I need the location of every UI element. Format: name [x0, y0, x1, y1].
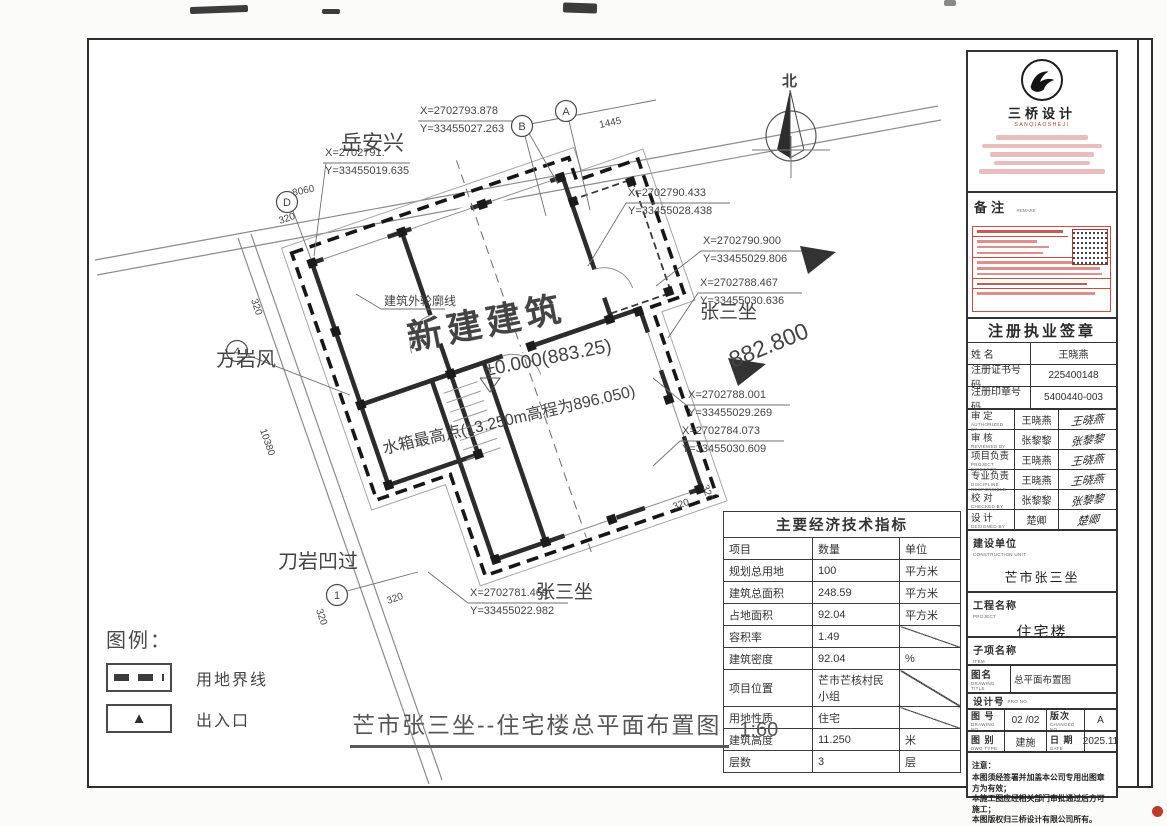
- seal-label: 注册印章号码: [968, 387, 1030, 408]
- drawing-no-row: 图 号DRAWING NO. 02 /02 版次CHANGED NO. A: [966, 708, 1118, 732]
- cell: 11.250: [813, 729, 900, 751]
- project-label: 工程名称: [973, 601, 1017, 612]
- faint-company-info-line: [994, 161, 1090, 166]
- dim-8060: 8060: [291, 183, 315, 198]
- table-title: 主要经济技术指标: [724, 512, 961, 538]
- table-row: 项目位置芒市芒核村民小组: [724, 670, 961, 707]
- drawing-type-label: 图 别: [971, 733, 1001, 746]
- title-block: 三桥设计 SANQIAOSHEJI 备注 REMARK 注册执业签章: [966, 50, 1118, 798]
- note-line: 本图版权归三桥设计有限公司所有。: [972, 815, 1112, 826]
- coord-label: Y=33455030.609: [682, 443, 766, 455]
- dim-10380: 10380: [257, 427, 277, 457]
- col-header: 数量: [813, 538, 900, 560]
- note-line: 本施工图应经相关部门审批通过后方可施工；: [972, 794, 1112, 815]
- owner-name-right: 张三坐: [700, 301, 757, 323]
- qualification-stamp: [972, 226, 1111, 312]
- signoff-name: 楚卿: [1014, 510, 1058, 529]
- neighbor-name-top: 岳安兴: [341, 132, 404, 155]
- remark-box: 备注 REMARK: [966, 191, 1118, 319]
- scan-artifact: [563, 2, 597, 13]
- dim-320: 320: [385, 591, 405, 607]
- signoff-label: 专业负责: [971, 468, 1011, 482]
- scan-artifact: [944, 0, 956, 6]
- seal-value: 225400148: [1030, 365, 1116, 386]
- col-header: 单位: [900, 538, 961, 560]
- design-no-label-en: PRO NO.: [1008, 699, 1029, 704]
- signoff-label-en: CHECKED BY: [971, 504, 1011, 509]
- qr-code: [1073, 230, 1107, 264]
- cell-diagonal: [900, 670, 961, 707]
- drawing-type-row: 图 别DWG TYPE 建施 日 期DATE 2025.11: [966, 730, 1118, 753]
- signoff-row: 审 核REVIEWED BY 张黎黎 张黎黎: [968, 429, 1116, 449]
- cell-diagonal: [900, 707, 961, 729]
- entrance-marker: [800, 246, 836, 274]
- scan-artifact: [190, 5, 248, 14]
- coord-label: X=2702784.073: [682, 425, 760, 437]
- coord-label: X=2702790.900: [703, 235, 781, 247]
- water-tank-label: 水箱最高点(13.250m高程为896.050): [381, 382, 637, 458]
- company-name-latin: SANQIAOSHEJI: [968, 122, 1116, 128]
- signoff-name: 张黎黎: [1014, 490, 1058, 509]
- owner-value: 芒市张三坐: [973, 567, 1111, 586]
- signoff-name: 王晓燕: [1014, 410, 1058, 429]
- scan-artifact: [322, 9, 340, 14]
- legend-title: 图例：: [106, 624, 268, 653]
- cell: 芒市芒核村民小组: [813, 670, 900, 707]
- seal-title: 注册执业签章: [968, 319, 1116, 342]
- triangle-icon: ▲: [132, 711, 147, 726]
- cell: 占地面积: [724, 604, 813, 626]
- remark-label-en: REMARK: [1016, 208, 1035, 213]
- neighbor-name-left: 方岩风: [216, 348, 276, 371]
- signoff-row: 校 对CHECKED BY 张黎黎 张黎黎: [968, 489, 1116, 509]
- legend-label: 出入口: [196, 707, 250, 731]
- sheet-scale: 1:60: [739, 719, 778, 748]
- signoff-row: 审 定AUTHORIZED BY 王晓燕 王晓燕: [968, 410, 1116, 429]
- coord-label: Y=33455027.263: [420, 123, 504, 135]
- date-label: 日 期: [1050, 733, 1081, 746]
- cell: 平方米: [900, 582, 961, 604]
- signoff-row: 项目负责PROJECT DIRECTOR 王晓燕 王晓燕: [968, 449, 1116, 469]
- table-row: 层数3层: [724, 751, 961, 773]
- table-row: 规划总用地100平方米: [724, 560, 961, 582]
- drawing-no-label: 图 号: [971, 709, 1001, 722]
- cell: 92.04: [813, 648, 900, 670]
- date-label-en: DATE: [1050, 746, 1081, 751]
- drawing-name-label-en: DRAWING TITLE: [971, 681, 1007, 691]
- owner-label: 建设单位: [973, 539, 1017, 550]
- signature: 张黎黎: [1071, 490, 1105, 510]
- revision-value: A: [1084, 710, 1116, 730]
- cell: 建筑密度: [724, 648, 813, 670]
- entrance-symbol: ▲: [106, 704, 172, 733]
- signoff-row: 专业负责DISCIPLINE RESPONSIBLE 王晓燕 王晓燕: [968, 469, 1116, 489]
- north-label: 北: [782, 73, 797, 90]
- coord-label: X=2702788.467: [700, 277, 778, 289]
- signoff-name: 王晓燕: [1014, 450, 1058, 469]
- scanned-site-plan-sheet: { "plan": { "labels": { "north": "北", "b…: [0, 0, 1167, 825]
- col-header: 项目: [724, 538, 813, 560]
- coord-label: Y=33455028.438: [628, 205, 712, 217]
- cell: 容积率: [724, 626, 813, 648]
- sheet-title: 芒市张三坐--住宅楼总平面布置图 1:60: [350, 706, 778, 748]
- signoff-label: 审 核: [971, 430, 1011, 444]
- drawing-no-value: 02 /02: [1004, 710, 1046, 730]
- owner-name-bottom: 张三坐: [536, 581, 593, 603]
- boundary-line-symbol: [106, 663, 172, 692]
- cell: 1.49: [813, 626, 900, 648]
- company-name: 三桥设计: [968, 103, 1116, 122]
- site-elevation-label: 882.800: [725, 317, 812, 372]
- table-row: 容积率1.49: [724, 626, 961, 648]
- dim-1445: 1445: [598, 115, 622, 130]
- dim-320: 320: [313, 607, 329, 627]
- drawing-name-box: 图名DRAWING TITLE 总平面布置图: [966, 664, 1118, 694]
- cell: 3: [813, 751, 900, 773]
- faint-company-info-line: [996, 135, 1088, 140]
- design-no-label: 设计号: [973, 694, 1005, 708]
- neighbor-name-bottom-left: 刀岩凹过: [278, 550, 358, 573]
- watermark-badge-icon: [1152, 806, 1163, 817]
- cell: 平方米: [900, 560, 961, 582]
- signoff-label: 设 计: [971, 510, 1011, 524]
- owner-label-en: CONSTRUCTION UNIT: [973, 552, 1111, 557]
- cell: 248.59: [813, 582, 900, 604]
- project-label-en: PROJECT: [973, 614, 1111, 619]
- faint-company-info-line: [979, 169, 1105, 174]
- signoff-section: 审 定AUTHORIZED BY 王晓燕 王晓燕 审 核REVIEWED BY …: [966, 408, 1118, 531]
- table-row: 占地面积92.04平方米: [724, 604, 961, 626]
- cell: 92.04: [813, 604, 900, 626]
- revision-label: 版次: [1050, 709, 1081, 722]
- cell: 建筑总面积: [724, 582, 813, 604]
- frame-inner-line: [1137, 38, 1139, 786]
- drawing-name-label: 图名: [971, 667, 1007, 681]
- legend-label: 用地界线: [196, 666, 268, 690]
- seal-value: 王晓燕: [1030, 343, 1116, 364]
- coord-label: X=2702788.001: [688, 389, 766, 401]
- project-box: 工程名称 PROJECT 住宅楼: [966, 591, 1118, 638]
- notes-label: 注意：: [972, 761, 995, 770]
- grid-bubble-a: A: [562, 106, 570, 118]
- cell: 项目位置: [724, 670, 813, 707]
- outline-label: 建筑外轮廓线: [384, 293, 456, 308]
- signoff-label: 审 定: [971, 408, 1011, 422]
- coord-label: X=2702790.433: [628, 187, 706, 199]
- sheet-title-text: 芒市张三坐--住宅楼总平面布置图: [350, 706, 729, 748]
- remark-label: 备注: [974, 200, 1008, 215]
- signature: 王晓燕: [1071, 410, 1105, 430]
- cell: 层数: [724, 751, 813, 773]
- cell-diagonal: [900, 626, 961, 648]
- cell: 住宅: [813, 707, 900, 729]
- grid-bubble-b: B: [518, 121, 525, 133]
- subitem-label: 子项名称: [973, 646, 1017, 657]
- logo-box: 三桥设计 SANQIAOSHEJI: [966, 50, 1118, 193]
- table-row: 建筑密度92.04%: [724, 648, 961, 670]
- drawing-type-value: 建施: [1004, 732, 1046, 751]
- table-row: 建筑总面积248.59平方米: [724, 582, 961, 604]
- coord-label: Y=33455022.982: [470, 605, 554, 617]
- faint-company-info-line: [982, 144, 1102, 149]
- coord-label: Y=33455029.269: [688, 407, 772, 419]
- coord-label: Y=33455019.635: [325, 165, 409, 177]
- signature: 王晓燕: [1071, 450, 1105, 470]
- signoff-label: 校 对: [971, 490, 1011, 504]
- signoff-row: 设 计DESIGNED BY 楚卿 楚卿: [968, 509, 1116, 529]
- dim-320: 320: [248, 297, 264, 317]
- cell: %: [900, 648, 961, 670]
- signoff-label: 项目负责: [971, 448, 1011, 462]
- signoff-name: 王晓燕: [1014, 470, 1058, 489]
- owner-box: 建设单位 CONSTRUCTION UNIT 芒市张三坐: [966, 529, 1118, 593]
- legend: 图例： 用地界线 ▲ 出入口: [106, 624, 268, 745]
- coord-label: Y=33455029.806: [703, 253, 787, 265]
- cell: 平方米: [900, 604, 961, 626]
- subitem-box: 子项名称 ITEM: [966, 636, 1118, 666]
- cell: 层: [900, 751, 961, 773]
- cell: 规划总用地: [724, 560, 813, 582]
- signature: 张黎黎: [1071, 430, 1105, 450]
- seal-section: 注册执业签章 姓 名 王晓燕 注册证书号码 225400148 注册印章号码 5…: [966, 317, 1118, 410]
- signoff-name: 张黎黎: [1014, 430, 1058, 449]
- notes-box: 注意： 本图须经签署并加盖本公司专用出图章方为有效； 本施工图应经相关部门审批通…: [966, 751, 1118, 798]
- drawing-name-value: 总平面布置图: [1010, 666, 1116, 692]
- cell: 米: [900, 729, 961, 751]
- signature: 王晓燕: [1071, 470, 1105, 490]
- legend-item-boundary: 用地界线: [106, 663, 268, 692]
- seal-row: 注册印章号码 5400440-003: [968, 386, 1116, 408]
- grid-bubble-d: D: [283, 197, 291, 209]
- date-value: 2025.11: [1084, 732, 1116, 751]
- north-arrow: 北: [752, 73, 830, 178]
- grid-bubble-1: 1: [334, 590, 340, 602]
- seal-value: 5400440-003: [1030, 387, 1116, 408]
- cell: 100: [813, 560, 900, 582]
- legend-item-entrance: ▲ 出入口: [106, 704, 268, 733]
- note-line: 本图须经签署并加盖本公司专用出图章方为有效；: [972, 773, 1112, 794]
- drawing-type-label-en: DWG TYPE: [971, 746, 1001, 751]
- coord-label: X=2702793.878: [420, 105, 498, 117]
- faint-company-info-line: [990, 152, 1094, 157]
- signature: 楚卿: [1076, 510, 1099, 529]
- company-logo-icon: [1021, 59, 1063, 101]
